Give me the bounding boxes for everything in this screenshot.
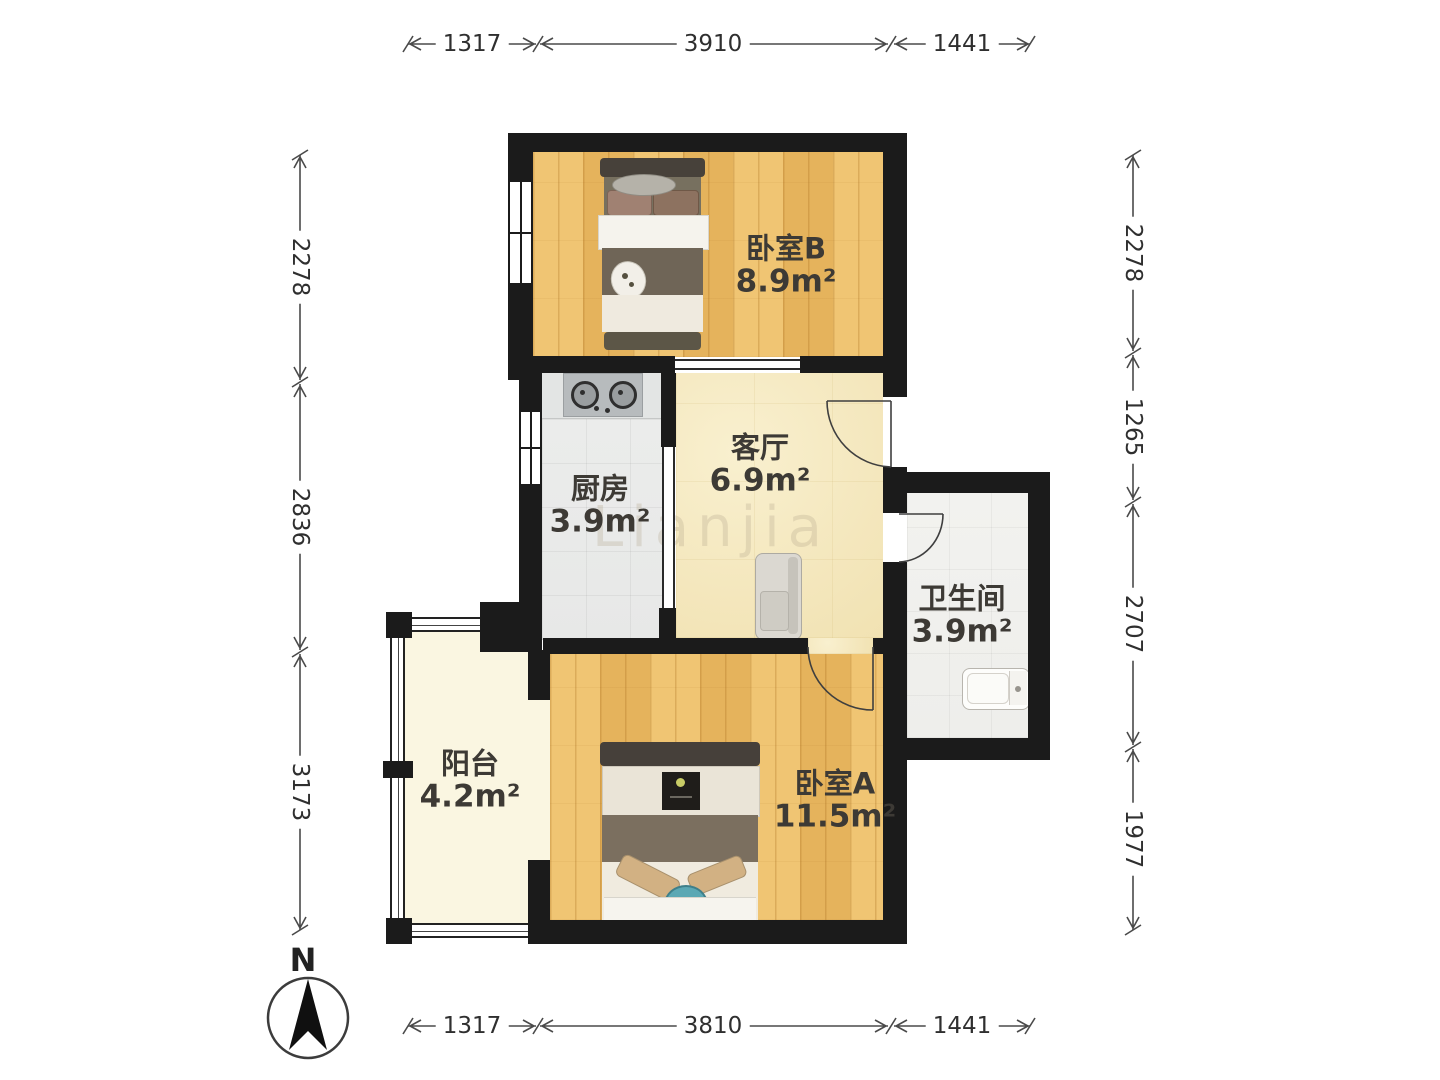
partition-wall [675,359,800,370]
dim-bottom-3: 1441 [926,1012,999,1040]
dim-right-2: 1265 [1119,391,1147,464]
room-label-living: 客厅 6.9m² [710,431,811,498]
bed-sheet-band [598,215,709,250]
compass-icon [268,978,348,1058]
dim-left-1: 2278 [286,231,314,304]
bathtub-icon [962,668,1030,710]
double-bed-icon [600,742,760,920]
room-label-bedroom-a: 卧室A 11.5m² [774,767,896,834]
room-label-bedroom-b: 卧室B 8.9m² [736,232,837,299]
balcony-window-icon [412,923,530,938]
floor-balcony-passage [528,700,550,860]
balcony-window-icon [390,637,405,919]
bed-footer [604,332,701,350]
dim-right-3: 2707 [1119,588,1147,661]
dim-bottom-1: 1317 [436,1012,509,1040]
window-icon [508,178,533,287]
bed-fan-icon [612,174,676,196]
floor-living-door-gap [808,638,873,654]
dim-bottom-2: 3810 [677,1012,750,1040]
balcony-window-icon [412,617,482,632]
bed-headboard [600,742,760,766]
dim-top-3: 1441 [926,30,999,58]
dim-left-2: 2836 [286,481,314,554]
floorplan-canvas: Lianjia [0,0,1440,1080]
tv-icon [662,772,700,810]
compass-north-label: N [290,941,317,979]
stove-burner [571,381,599,409]
bed-sheet-band [604,897,756,921]
partition-wall [662,447,675,610]
dim-right-1: 2278 [1119,217,1147,290]
bed-lower-band [602,295,703,332]
window-icon [519,408,542,488]
dim-top-1: 1317 [436,30,509,58]
room-label-kitchen: 厨房 3.9m² [550,472,651,539]
dim-right-4: 1977 [1119,803,1147,876]
gas-stove-icon [542,372,662,418]
dim-left-3: 3173 [286,756,314,829]
room-label-bathroom: 卫生间 3.9m² [912,582,1013,649]
double-bed-icon [600,158,705,350]
stove-burner [609,381,637,409]
dim-top-2: 3910 [677,30,750,58]
armchair-icon [755,553,802,640]
room-label-balcony: 阳台 4.2m² [420,747,521,814]
